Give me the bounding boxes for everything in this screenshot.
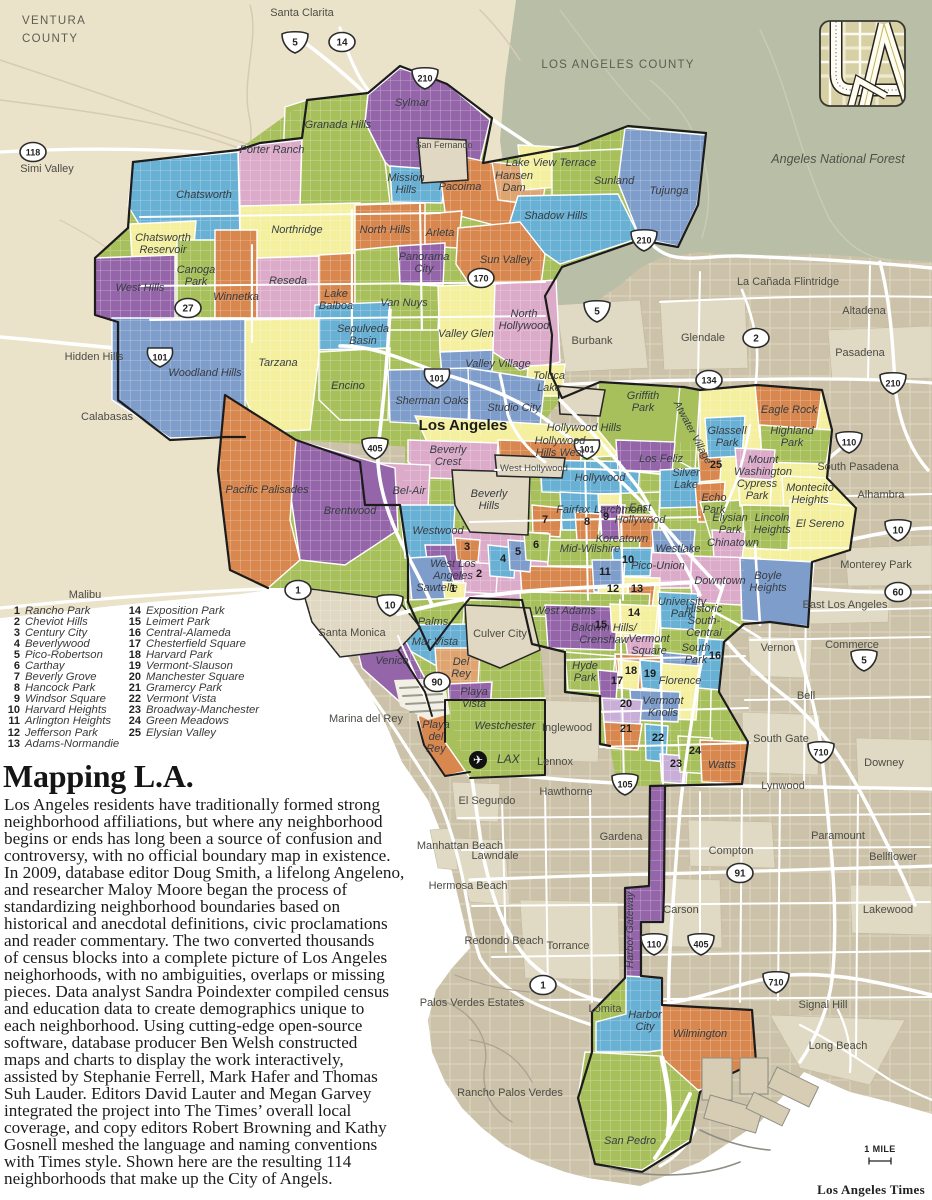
svg-text:Florence: Florence (659, 675, 702, 687)
svg-text:Lake: Lake (324, 288, 348, 300)
svg-text:Hermosa Beach: Hermosa Beach (429, 880, 508, 892)
svg-text:Griffith: Griffith (627, 390, 659, 402)
svg-text:Heights: Heights (753, 524, 791, 536)
svg-text:Hills: Hills (396, 184, 417, 196)
svg-text:Cypress: Cypress (737, 478, 778, 490)
svg-text:23: 23 (670, 758, 682, 770)
svg-text:Valley Village: Valley Village (465, 358, 530, 370)
svg-text:1: 1 (540, 981, 546, 992)
svg-text:Historic: Historic (686, 603, 723, 615)
svg-text:Lakewood: Lakewood (863, 904, 913, 916)
svg-text:25: 25 (710, 459, 722, 471)
svg-text:Park: Park (632, 402, 655, 414)
svg-text:7: 7 (542, 514, 548, 526)
svg-text:Burbank: Burbank (572, 335, 613, 347)
svg-text:22: 22 (652, 732, 664, 744)
svg-text:Echo: Echo (701, 492, 726, 504)
svg-text:Arleta: Arleta (425, 227, 455, 239)
svg-text:Del: Del (453, 656, 470, 668)
svg-text:LOS ANGELES COUNTY: LOS ANGELES COUNTY (541, 59, 694, 71)
svg-text:5: 5 (594, 307, 600, 318)
svg-text:Pacoima: Pacoima (439, 181, 482, 193)
svg-text:City: City (636, 1021, 656, 1033)
svg-text:Sepulveda: Sepulveda (337, 323, 389, 335)
svg-text:Westlake: Westlake (655, 543, 700, 555)
svg-text:2: 2 (476, 568, 482, 580)
svg-text:North: North (511, 308, 538, 320)
svg-text:Winnetka: Winnetka (213, 291, 259, 303)
svg-text:Hollywood: Hollywood (499, 320, 551, 332)
svg-text:Palms: Palms (418, 616, 449, 628)
svg-text:11: 11 (599, 566, 611, 578)
svg-text:Mar Vista: Mar Vista (412, 636, 458, 648)
svg-text:Watts: Watts (708, 759, 736, 771)
svg-text:Park: Park (574, 672, 597, 684)
svg-text:2: 2 (753, 334, 759, 345)
svg-text:Elysian: Elysian (712, 512, 747, 524)
svg-text:Beverly: Beverly (471, 488, 509, 500)
svg-text:South Gate: South Gate (753, 733, 809, 745)
svg-text:1: 1 (450, 583, 456, 595)
svg-text:24: 24 (689, 745, 702, 757)
svg-text:Downtown: Downtown (694, 575, 745, 587)
svg-text:20: 20 (620, 698, 632, 710)
svg-text:Calabasas: Calabasas (81, 411, 133, 423)
svg-text:Valley Glen: Valley Glen (438, 328, 494, 340)
svg-text:Venice: Venice (375, 655, 408, 667)
svg-text:Hills: Hills (479, 500, 500, 512)
svg-text:Altadena: Altadena (842, 305, 886, 317)
svg-text:Santa Clarita: Santa Clarita (270, 7, 334, 19)
svg-text:Carson: Carson (663, 904, 698, 916)
svg-text:Wilmington: Wilmington (673, 1028, 727, 1040)
svg-text:Park: Park (719, 524, 742, 536)
svg-text:4: 4 (500, 553, 507, 565)
svg-text:Boyle: Boyle (754, 570, 782, 582)
svg-text:Knolls: Knolls (648, 707, 678, 719)
svg-text:Mount: Mount (748, 454, 780, 466)
svg-text:Lomita: Lomita (588, 1003, 622, 1015)
svg-text:Crenshaw: Crenshaw (579, 634, 630, 646)
svg-text:Compton: Compton (709, 845, 754, 857)
svg-text:El Sereno: El Sereno (796, 518, 844, 530)
svg-text:Signal Hill: Signal Hill (799, 999, 848, 1011)
svg-text:Pico-Union: Pico-Union (631, 560, 685, 572)
svg-text:Tujunga: Tujunga (650, 185, 689, 197)
svg-text:Sylmar: Sylmar (395, 97, 431, 109)
svg-text:Shadow Hills: Shadow Hills (524, 210, 588, 222)
svg-text:14: 14 (628, 607, 641, 619)
svg-text:Bel-Air: Bel-Air (392, 485, 426, 497)
svg-text:Rey: Rey (451, 668, 472, 680)
svg-text:13: 13 (631, 583, 643, 595)
svg-text:Mission: Mission (387, 172, 424, 184)
svg-text:Park: Park (781, 437, 804, 449)
svg-text:South-: South- (688, 615, 721, 627)
svg-text:Porter Ranch: Porter Ranch (240, 144, 305, 156)
svg-text:Bell: Bell (797, 690, 815, 702)
svg-text:110: 110 (842, 438, 857, 448)
svg-text:Vernon: Vernon (761, 642, 796, 654)
svg-text:1: 1 (295, 586, 301, 597)
svg-text:60: 60 (892, 588, 904, 599)
svg-text:La Cañada Flintridge: La Cañada Flintridge (737, 276, 839, 288)
svg-text:Highland: Highland (770, 425, 814, 437)
svg-text:16: 16 (709, 650, 721, 662)
svg-text:210: 210 (885, 379, 900, 389)
svg-text:10: 10 (622, 554, 634, 566)
svg-text:Lynwood: Lynwood (761, 780, 805, 792)
svg-text:West Hollywood: West Hollywood (500, 463, 568, 474)
svg-text:Angeles: Angeles (432, 570, 473, 582)
svg-text:Manhattan Beach: Manhattan Beach (417, 840, 503, 852)
svg-text:90: 90 (431, 678, 443, 689)
svg-text:Playa: Playa (460, 686, 488, 698)
svg-text:Commerce: Commerce (825, 639, 879, 651)
svg-text:Brentwood: Brentwood (324, 505, 377, 517)
svg-text:Lake: Lake (537, 382, 561, 394)
svg-text:710: 710 (768, 978, 783, 988)
svg-text:Balboa: Balboa (319, 300, 353, 312)
svg-text:South Pasadena: South Pasadena (817, 461, 899, 473)
svg-text:101: 101 (429, 374, 444, 384)
svg-text:Heights: Heights (749, 582, 787, 594)
svg-text:Beverly: Beverly (430, 444, 468, 456)
svg-text:Long Beach: Long Beach (809, 1040, 868, 1052)
svg-text:8: 8 (584, 516, 590, 528)
svg-text:Studio City: Studio City (487, 402, 542, 414)
svg-text:5: 5 (515, 546, 521, 558)
svg-text:27: 27 (182, 304, 194, 315)
svg-text:Gardena: Gardena (600, 831, 644, 843)
svg-text:✈: ✈ (473, 753, 483, 767)
svg-text:Hollywood: Hollywood (575, 472, 627, 484)
svg-text:Lake: Lake (674, 479, 698, 491)
svg-text:Marina del Rey: Marina del Rey (329, 713, 403, 725)
svg-text:Santa Monica: Santa Monica (318, 627, 386, 639)
svg-text:210: 210 (636, 236, 651, 246)
svg-text:21: 21 (620, 723, 632, 735)
svg-text:Simi Valley: Simi Valley (20, 163, 74, 175)
svg-text:North Hills: North Hills (360, 224, 411, 236)
svg-text:Washington: Washington (734, 466, 792, 478)
svg-text:West Hills: West Hills (116, 282, 165, 294)
svg-text:Alhambra: Alhambra (857, 489, 905, 501)
svg-text:1 MILE: 1 MILE (864, 1144, 895, 1154)
svg-text:10: 10 (892, 526, 904, 537)
svg-text:Reseda: Reseda (269, 275, 307, 287)
svg-text:Granada Hills: Granada Hills (305, 119, 372, 131)
svg-text:6: 6 (533, 539, 539, 551)
svg-text:East: East (629, 502, 652, 514)
svg-text:Canoga: Canoga (177, 264, 216, 276)
svg-text:Vermont: Vermont (642, 695, 684, 707)
svg-text:Van Nuys: Van Nuys (380, 297, 428, 309)
svg-text:San Fernando: San Fernando (415, 140, 472, 150)
svg-text:Culver City: Culver City (473, 628, 527, 640)
svg-text:Toluca: Toluca (533, 370, 565, 382)
svg-text:Vista: Vista (462, 698, 486, 710)
svg-text:San Pedro: San Pedro (604, 1135, 656, 1147)
svg-text:Lake View Terrace: Lake View Terrace (506, 157, 597, 169)
svg-text:Monterey Park: Monterey Park (840, 559, 912, 571)
svg-text:Park: Park (716, 437, 739, 449)
svg-text:Reservoir: Reservoir (139, 244, 187, 256)
svg-text:Square: Square (631, 645, 666, 657)
svg-text:Silver: Silver (672, 467, 701, 479)
svg-text:Pasadena: Pasadena (835, 347, 885, 359)
svg-text:Northridge: Northridge (271, 224, 322, 236)
svg-text:Sunland: Sunland (594, 175, 635, 187)
svg-text:South: South (682, 642, 711, 654)
svg-text:Torrance: Torrance (547, 940, 590, 952)
svg-text:Lennox: Lennox (537, 756, 574, 768)
svg-text:91: 91 (734, 869, 746, 880)
svg-text:18: 18 (625, 665, 637, 677)
svg-text:Los Feliz: Los Feliz (639, 453, 684, 465)
svg-text:El Segundo: El Segundo (459, 795, 516, 807)
svg-text:West Adams: West Adams (534, 605, 596, 617)
svg-text:Westchester: Westchester (475, 720, 537, 732)
svg-text:9: 9 (603, 511, 609, 523)
svg-text:Crest: Crest (435, 456, 462, 468)
svg-text:Vermont: Vermont (628, 633, 670, 645)
svg-text:Harbor Gateway: Harbor Gateway (624, 891, 636, 968)
svg-text:12: 12 (607, 583, 619, 595)
svg-text:Hollywood Hills: Hollywood Hills (547, 422, 622, 434)
svg-text:17: 17 (611, 675, 623, 687)
svg-text:Playa: Playa (422, 719, 450, 731)
svg-text:Eagle Rock: Eagle Rock (761, 404, 818, 416)
svg-text:10: 10 (384, 601, 396, 612)
svg-text:West Los: West Los (430, 558, 476, 570)
svg-text:Chinatown: Chinatown (707, 537, 759, 549)
svg-text:VENTURA: VENTURA (22, 15, 86, 27)
svg-text:3: 3 (464, 541, 470, 553)
svg-text:19: 19 (644, 668, 656, 680)
svg-text:Los Angeles: Los Angeles (419, 417, 508, 434)
svg-text:210: 210 (417, 74, 432, 84)
svg-text:Hollywood: Hollywood (615, 514, 667, 526)
svg-text:Park: Park (746, 490, 769, 502)
svg-text:City: City (415, 263, 435, 275)
svg-text:Fairfax: Fairfax (556, 504, 590, 516)
svg-text:Park: Park (185, 276, 208, 288)
svg-text:Redondo Beach: Redondo Beach (465, 935, 544, 947)
svg-text:Paramount: Paramount (811, 830, 865, 842)
svg-text:110: 110 (647, 940, 662, 950)
svg-text:Hawthorne: Hawthorne (539, 786, 592, 798)
svg-text:Westwood: Westwood (412, 525, 464, 537)
svg-text:Mid-Wilshire: Mid-Wilshire (560, 543, 620, 555)
svg-text:Chatsworth: Chatsworth (135, 232, 191, 244)
svg-text:LAX: LAX (497, 752, 521, 766)
svg-text:COUNTY: COUNTY (22, 33, 78, 45)
svg-text:Malibu: Malibu (69, 589, 101, 601)
svg-text:Heights: Heights (791, 494, 829, 506)
svg-text:Downey: Downey (864, 757, 904, 769)
svg-text:170: 170 (473, 274, 488, 284)
svg-text:Bellflower: Bellflower (869, 851, 917, 863)
svg-text:101: 101 (152, 353, 167, 363)
svg-text:Park: Park (685, 654, 708, 666)
svg-text:Glendale: Glendale (681, 332, 725, 344)
svg-text:Woodland Hills: Woodland Hills (168, 367, 242, 379)
svg-text:15: 15 (595, 619, 607, 631)
svg-text:Hills West: Hills West (536, 447, 586, 459)
svg-text:Glassell: Glassell (707, 425, 747, 437)
svg-text:Sherman Oaks: Sherman Oaks (395, 395, 469, 407)
svg-text:Basin: Basin (349, 335, 377, 347)
svg-text:Dam: Dam (502, 182, 525, 194)
svg-text:405: 405 (367, 444, 382, 454)
svg-text:5: 5 (861, 656, 867, 667)
svg-text:Harbor: Harbor (628, 1009, 663, 1021)
svg-text:Hyde: Hyde (572, 660, 598, 672)
svg-text:Hidden Hills: Hidden Hills (65, 351, 124, 363)
svg-text:Angeles National Forest: Angeles National Forest (770, 152, 905, 166)
svg-text:Chatsworth: Chatsworth (176, 189, 232, 201)
svg-text:Encino: Encino (331, 380, 365, 392)
svg-text:Central: Central (686, 627, 722, 639)
svg-text:Tarzana: Tarzana (258, 357, 297, 369)
svg-text:Rancho Palos Verdes: Rancho Palos Verdes (457, 1087, 563, 1099)
svg-text:Inglewood: Inglewood (542, 722, 592, 734)
svg-text:Panorama: Panorama (399, 251, 450, 263)
svg-text:105: 105 (617, 780, 632, 790)
svg-text:Hollywood: Hollywood (535, 435, 587, 447)
svg-text:5: 5 (292, 38, 298, 49)
svg-text:14: 14 (336, 38, 348, 49)
svg-text:Hansen: Hansen (495, 170, 533, 182)
svg-text:405: 405 (693, 940, 708, 950)
svg-text:Pacific Palisades: Pacific Palisades (225, 484, 309, 496)
svg-text:Sun Valley: Sun Valley (480, 254, 534, 266)
svg-text:118: 118 (26, 148, 41, 158)
svg-text:710: 710 (813, 748, 828, 758)
svg-text:134: 134 (701, 376, 716, 386)
svg-text:Rey: Rey (426, 743, 447, 755)
svg-text:del: del (429, 731, 444, 743)
svg-text:Montecito: Montecito (786, 482, 834, 494)
svg-text:Lincoln: Lincoln (755, 512, 790, 524)
svg-text:East Los Angeles: East Los Angeles (802, 599, 888, 611)
svg-text:Palos Verdes Estates: Palos Verdes Estates (420, 997, 525, 1009)
